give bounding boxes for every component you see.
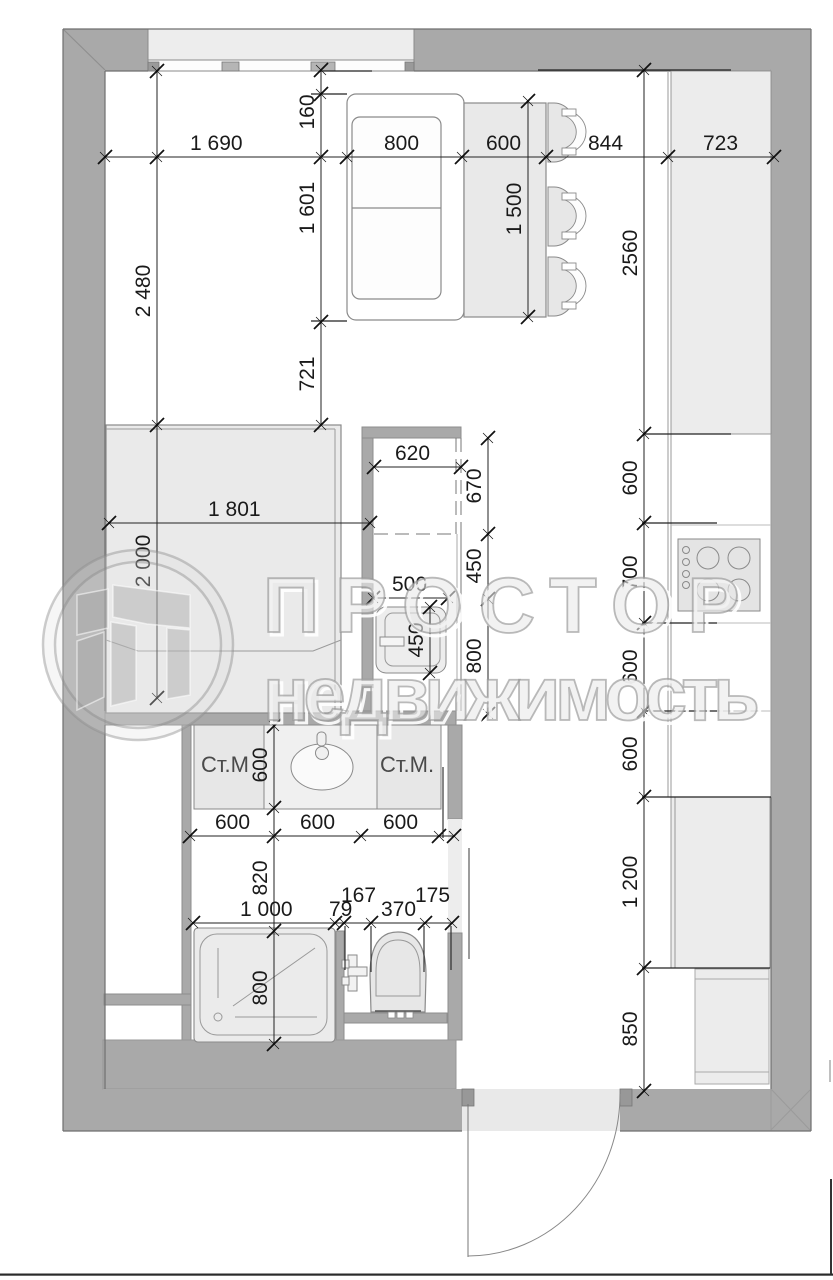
svg-text:1 801: 1 801 (208, 498, 261, 521)
svg-text:723: 723 (703, 132, 738, 155)
svg-text:2 480: 2 480 (132, 265, 155, 318)
svg-text:2560: 2560 (619, 230, 642, 277)
svg-text:620: 620 (395, 442, 430, 465)
svg-text:600: 600 (619, 460, 642, 495)
svg-text:670: 670 (463, 468, 486, 503)
svg-text:600: 600 (300, 811, 335, 834)
svg-text:160: 160 (296, 94, 319, 129)
svg-text:370: 370 (381, 898, 416, 921)
svg-text:850: 850 (619, 1011, 642, 1046)
svg-text:600: 600 (215, 811, 250, 834)
svg-text:1 000: 1 000 (240, 898, 293, 921)
svg-text:Ст.М: Ст.М (201, 752, 249, 777)
svg-text:844: 844 (588, 132, 623, 155)
svg-text:820: 820 (249, 860, 272, 895)
svg-text:1 500: 1 500 (503, 183, 526, 236)
svg-text:недвижимость: недвижимость (263, 652, 757, 737)
svg-text:1 690: 1 690 (190, 132, 243, 155)
svg-text:175: 175 (415, 884, 450, 907)
svg-text:600: 600 (486, 132, 521, 155)
svg-text:1 601: 1 601 (296, 182, 319, 235)
svg-text:800: 800 (384, 132, 419, 155)
svg-text:600: 600 (383, 811, 418, 834)
svg-text:800: 800 (249, 970, 272, 1005)
svg-text:721: 721 (296, 356, 319, 391)
svg-text:600: 600 (249, 747, 272, 782)
svg-text:ПРОСТОР: ПРОСТОР (263, 561, 756, 649)
svg-text:1 200: 1 200 (619, 856, 642, 909)
svg-text:600: 600 (619, 736, 642, 771)
svg-text:167: 167 (341, 884, 376, 907)
svg-text:Ст.М.: Ст.М. (380, 752, 434, 777)
